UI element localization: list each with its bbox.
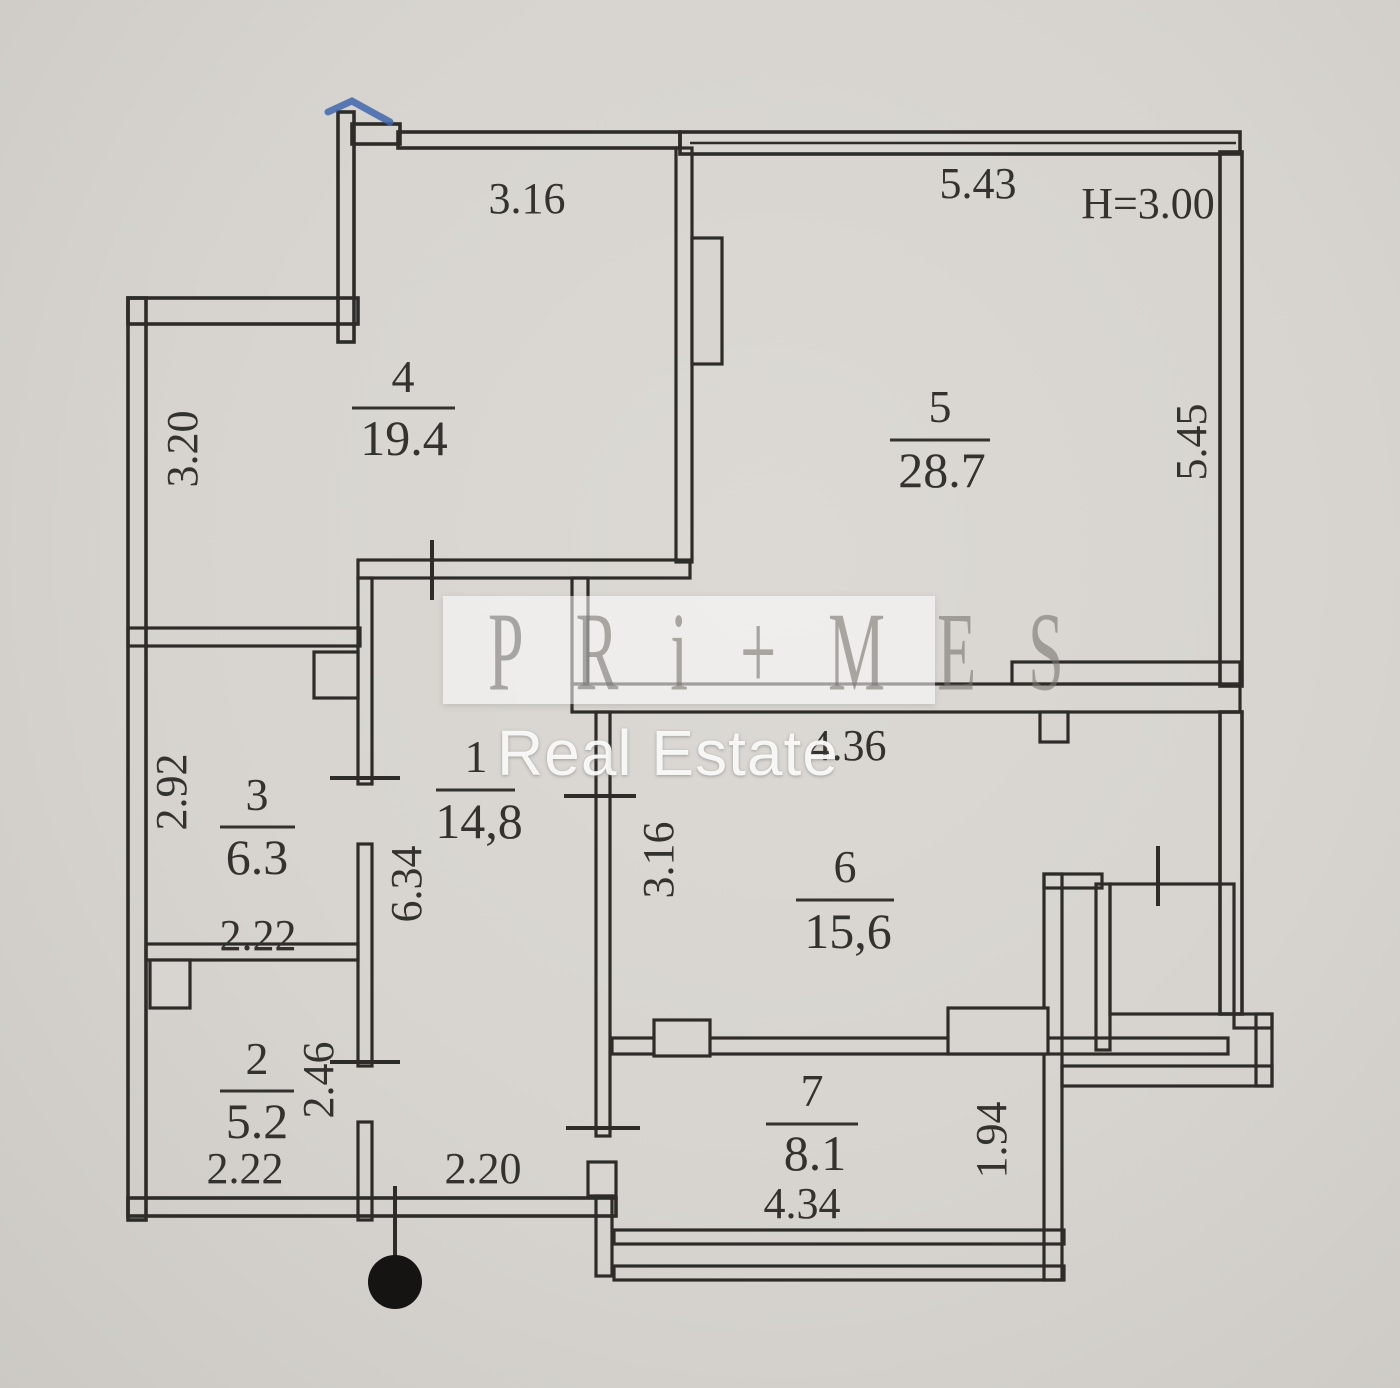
wall (338, 112, 354, 342)
wall (358, 844, 372, 1066)
dim-bottom-room2: 2.22 (207, 1144, 284, 1193)
wall (1234, 1014, 1272, 1028)
wall (1096, 884, 1110, 1050)
ceiling-height-label: H=3.00 (1081, 179, 1215, 228)
room1-number: 1 (465, 731, 488, 782)
dim-top-room5: 5.43 (940, 159, 1017, 208)
room6-area: 15,6 (804, 903, 892, 959)
wall (358, 578, 372, 784)
wall (676, 148, 692, 562)
room3-area: 6.3 (226, 829, 289, 885)
balcony-wall (614, 1230, 1064, 1244)
room7-number: 7 (801, 1065, 824, 1116)
vent-shaft-block (692, 238, 722, 364)
room1-area: 14,8 (435, 793, 523, 849)
wall (1062, 1066, 1272, 1086)
dim-bottom-room7: 4.34 (764, 1179, 841, 1228)
room5-number: 5 (929, 381, 952, 432)
wall (1044, 874, 1102, 888)
corner-pilaster (314, 652, 358, 698)
wall (128, 298, 146, 1220)
room2-number: 2 (246, 1033, 269, 1084)
dim-bottom-corridor: 2.20 (445, 1144, 522, 1193)
wall (1220, 712, 1242, 1014)
entrance-marker (368, 1186, 422, 1309)
wall (128, 298, 358, 324)
wall (1220, 152, 1242, 686)
column-block (654, 1020, 710, 1056)
wall (358, 560, 690, 578)
dim-room7-right: 1.94 (967, 1102, 1016, 1179)
wall (1044, 874, 1062, 1280)
entrance-dot (368, 1255, 422, 1309)
shaft-box (1110, 884, 1234, 1014)
dim-bottom-room3: 2.22 (220, 911, 297, 960)
room4-number: 4 (392, 351, 415, 402)
room6-number: 6 (834, 841, 857, 892)
wall (358, 1122, 372, 1220)
dim-left-room4: 3.20 (158, 411, 207, 488)
wall (596, 1196, 612, 1276)
balcony-wall (614, 1266, 1064, 1280)
wall (128, 628, 360, 646)
room5-area: 28.7 (898, 442, 986, 498)
wall-step (948, 1008, 1048, 1054)
wall (1256, 1014, 1272, 1086)
wall (352, 124, 400, 144)
wall (398, 132, 680, 148)
dim-room2-right: 2.46 (294, 1042, 343, 1119)
room2-area: 5.2 (226, 1093, 289, 1149)
dim-room6-left: 3.16 (634, 822, 683, 899)
wall-step (150, 960, 190, 1008)
watermark-subtitle: Real Estate (497, 716, 917, 790)
dim-left-room3: 2.92 (147, 754, 196, 831)
dim-right-room5: 5.45 (1167, 404, 1216, 481)
dim-corridor-height: 6.34 (382, 846, 431, 923)
dim-top-room4: 3.16 (489, 174, 566, 223)
room7-area: 8.1 (784, 1125, 847, 1181)
floor-plan-photo: 4 19.4 5 28.7 3 6.3 1 14,8 6 15,6 2 5.2 … (0, 0, 1400, 1388)
door-block (588, 1162, 616, 1196)
room3-number: 3 (246, 769, 269, 820)
room4-area: 19.4 (360, 410, 448, 466)
